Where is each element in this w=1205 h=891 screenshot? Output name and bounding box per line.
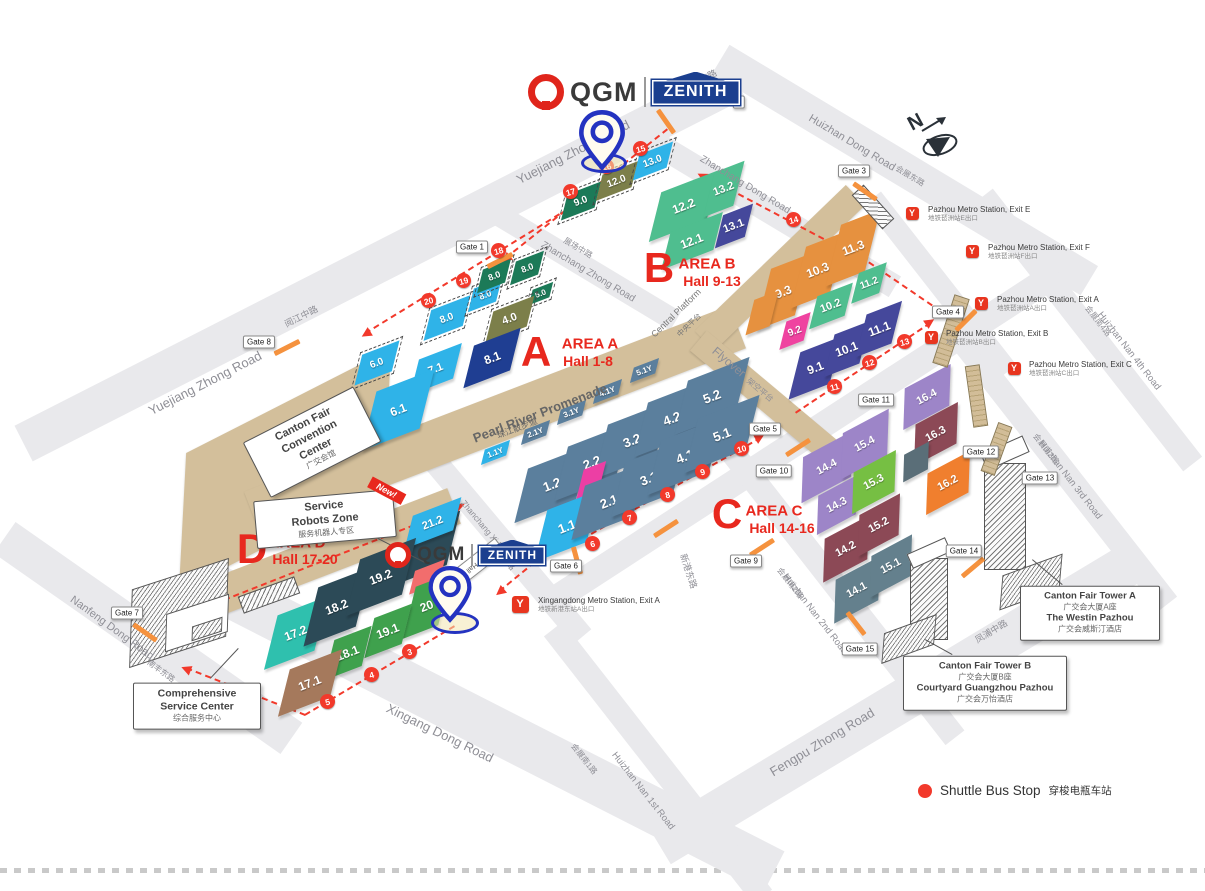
- road-label-26: 会展南2路: [774, 565, 805, 600]
- zenith-logo: ZENITH: [652, 80, 740, 105]
- logo-divider: [471, 544, 473, 566]
- hall-block: [903, 442, 929, 483]
- area-letter-C: C: [712, 493, 742, 535]
- qgm-zenith-logo-bottom: QGM ZENITH: [385, 542, 545, 568]
- area-range-A: Hall 1-8: [563, 354, 613, 368]
- metro-exit-zh: 地铁琶洲站A出口: [997, 305, 1099, 313]
- hall-label-11.3: 11.3: [840, 237, 866, 258]
- gate-gate-3: Gate 3: [838, 165, 870, 178]
- metro-exit-en: Pazhou Metro Station, Exit F: [988, 243, 1090, 253]
- canton-fair-map: QGM ZENITH QGM ZENITH N Shuttle Bus Stop…: [0, 0, 1205, 891]
- area-letter-A: A: [521, 331, 551, 373]
- hall-label-6.1: 6.1: [388, 400, 409, 419]
- metro-exit-label: Pazhou Metro Station, Exit B地铁琶洲站B出口: [946, 329, 1048, 347]
- area-range-D: Hall 17-20: [272, 552, 337, 566]
- metro-icon: Y: [906, 207, 919, 220]
- metro-exit-label: Pazhou Metro Station, Exit A地铁琶洲站A出口: [997, 295, 1099, 313]
- hall-label-21.2: 21.2: [421, 514, 445, 533]
- bus-stop-20: 20: [419, 291, 437, 309]
- gate-gate-4: Gate 4: [932, 306, 964, 319]
- callout-comprehensive-service-center: ComprehensiveService Center综合服务中心: [133, 683, 261, 730]
- callout-line-zh: 广交会万怡酒店: [909, 695, 1061, 705]
- metro-exit-en: Xingangdong Metro Station, Exit A: [538, 596, 660, 606]
- location-pin-icon: [428, 566, 472, 624]
- hall-label-10.2: 10.2: [819, 297, 843, 316]
- hall-label-14.3: 14.3: [825, 495, 850, 516]
- hall-label-19.2: 19.2: [368, 566, 395, 587]
- gate-gate-1: Gate 1: [456, 241, 488, 254]
- metro-exit-zh: 地铁琶洲站E出口: [928, 215, 1030, 223]
- legend-label: Shuttle Bus Stop: [940, 783, 1041, 798]
- tower-a-shaft: [984, 463, 1026, 570]
- qgm-logo-text: QGM: [417, 544, 465, 566]
- hall-label-8.0: 8.0: [439, 310, 456, 325]
- compass-n: N: [904, 109, 927, 135]
- pin-top: [578, 110, 626, 172]
- hall-label-11.2: 11.2: [858, 274, 880, 291]
- gate-gate-7: Gate 7: [111, 607, 143, 620]
- hall-label-11.1: 11.1: [866, 318, 892, 339]
- area-title-C: AREA C: [746, 504, 803, 519]
- hall-label-5.1: 5.1: [711, 424, 733, 444]
- gate-gate-14: Gate 14: [946, 545, 982, 558]
- hall-label-19.1: 19.1: [375, 620, 402, 641]
- gate-gate-8: Gate 8: [243, 336, 275, 349]
- metro-icon: Y: [966, 245, 979, 258]
- area-range-C: Hall 14-16: [749, 521, 814, 535]
- gate-bar-8: [273, 338, 300, 355]
- hall-label-9.1: 9.1: [805, 358, 826, 377]
- metro-exit-label: Xingangdong Metro Station, Exit A地铁新港东站A…: [538, 596, 660, 614]
- hall-label-16.2: 16.2: [936, 473, 961, 494]
- callout-line-zh: 广交会大厦A座: [1026, 603, 1154, 613]
- hall-label-17.1: 17.1: [297, 672, 324, 693]
- metro-icon: Y: [1008, 362, 1021, 375]
- hall-16.2: 16.2: [926, 451, 970, 515]
- callout-canton-fair-tower-b: Canton Fair Tower B广交会大厦B座Courtyard Guan…: [903, 656, 1067, 711]
- legend-shuttle-bus-stop: Shuttle Bus Stop 穿梭电瓶车站: [918, 783, 1112, 798]
- hall-label-13.0: 13.0: [642, 152, 664, 169]
- metro-exit-zh: 地铁新港东站A出口: [538, 606, 660, 614]
- hall-label-5.0: 5.0: [534, 287, 548, 299]
- hall-label-14.2: 14.2: [834, 539, 859, 560]
- qgm-icon: [528, 74, 564, 110]
- gate-bar-10: [961, 556, 986, 578]
- metro-icon: Y: [925, 331, 938, 344]
- hall-label-14.1: 14.1: [845, 580, 870, 601]
- metro-exit-en: Pazhou Metro Station, Exit B: [946, 329, 1048, 339]
- metro-exit-en: Pazhou Metro Station, Exit C: [1029, 360, 1132, 370]
- metro-exit-zh: 地铁琶洲站F出口: [988, 253, 1090, 261]
- hall-label-15.4: 15.4: [853, 434, 878, 455]
- metro-icon: Y: [975, 297, 988, 310]
- zenith-logo: ZENITH: [479, 546, 545, 565]
- gate-gate-10: Gate 10: [756, 465, 792, 478]
- callout-line: Courtyard Guangzhou Pazhou: [909, 683, 1061, 695]
- qgm-logo-text: QGM: [570, 77, 638, 108]
- hall-11.1: 11.1: [856, 301, 902, 357]
- compass-north-icon: N: [898, 105, 970, 167]
- callout-line-zh: 广交会大厦B座: [909, 673, 1061, 683]
- hall-label-4.0: 4.0: [501, 311, 520, 328]
- hall-label-9.2: 9.2: [787, 323, 804, 338]
- area-letter-B: B: [644, 247, 674, 289]
- callout-line-zh: 综合服务中心: [139, 714, 255, 724]
- gate-gate-12: Gate 12: [963, 446, 999, 459]
- metro-exit-label: Pazhou Metro Station, Exit F地铁琶洲站F出口: [988, 243, 1090, 261]
- map-bottom-edge: [0, 868, 1205, 873]
- legend-label-zh: 穿梭电瓶车站: [1049, 783, 1112, 798]
- qgm-icon: [385, 542, 411, 568]
- hall-label-15.3: 15.3: [862, 472, 887, 493]
- metro-exit-zh: 地铁琶洲站C出口: [1029, 370, 1132, 378]
- metro-exit-en: Pazhou Metro Station, Exit E: [928, 205, 1030, 215]
- callout-line: Comprehensive: [139, 688, 255, 701]
- hall-label-12.1: 12.1: [679, 230, 706, 251]
- bus-stop-19: 19: [454, 271, 472, 289]
- gate-gate-15: Gate 15: [842, 643, 878, 656]
- metro-exit-label: Pazhou Metro Station, Exit C地铁琶洲站C出口: [1029, 360, 1132, 378]
- hall-label-8.0: 8.0: [486, 269, 501, 283]
- metro-exit-zh: 地铁琶洲站B出口: [946, 339, 1048, 347]
- hall-label-6.0: 6.0: [369, 355, 386, 370]
- hall-label-16.4: 16.4: [915, 387, 940, 408]
- callout-canton-fair-tower-a: Canton Fair Tower A广交会大厦A座The Westin Paz…: [1020, 586, 1160, 641]
- callout-line-zh: 广交会威斯汀酒店: [1026, 625, 1154, 635]
- area-range-B: Hall 9-13: [683, 274, 741, 288]
- hall-label-15.1: 15.1: [879, 556, 904, 577]
- callout-line: Canton Fair Tower A: [1026, 591, 1154, 603]
- metro-exit-label: Pazhou Metro Station, Exit E地铁琶洲站E出口: [928, 205, 1030, 223]
- metro-icon: Y: [512, 596, 529, 613]
- callout-line: Canton Fair Tower B: [909, 661, 1061, 673]
- metro-exit-en: Pazhou Metro Station, Exit A: [997, 295, 1099, 305]
- pin-bottom: [428, 566, 472, 624]
- hall-label-1.1Y: 1.1Y: [486, 445, 505, 459]
- location-pin-icon: [578, 110, 626, 172]
- gate-gate-13: Gate 13: [1022, 472, 1058, 485]
- qgm-zenith-logo-top: QGM ZENITH: [528, 74, 740, 110]
- hall-label-5.1Y: 5.1Y: [635, 363, 654, 377]
- hall-label-12.2: 12.2: [671, 195, 698, 216]
- hall-label-8.0: 8.0: [519, 261, 534, 275]
- gate-gate-11: Gate 11: [858, 394, 894, 407]
- hall-label-13.1: 13.1: [722, 217, 746, 236]
- callout-line: Service Center: [139, 701, 255, 714]
- gate-gate-9: Gate 9: [730, 555, 762, 568]
- callout-line: The Westin Pazhou: [1026, 613, 1154, 625]
- hall-label-15.2: 15.2: [867, 515, 892, 536]
- area-title-A: AREA A: [562, 337, 618, 352]
- road-label-11: 新港东路: [677, 552, 700, 590]
- hall-label-5.2: 5.2: [701, 386, 723, 406]
- gate-gate-6: Gate 6: [550, 560, 582, 573]
- hall-label-8.1: 8.1: [482, 348, 503, 367]
- hall-label-14.4: 14.4: [815, 457, 840, 478]
- shuttle-bus-stop-icon: [918, 784, 932, 798]
- area-title-B: AREA B: [679, 257, 736, 272]
- gate-gate-5: Gate 5: [749, 423, 781, 436]
- hall-8.0: 8.0: [510, 251, 544, 285]
- hall-label-12.0: 12.0: [606, 172, 628, 189]
- logo-divider: [644, 77, 646, 107]
